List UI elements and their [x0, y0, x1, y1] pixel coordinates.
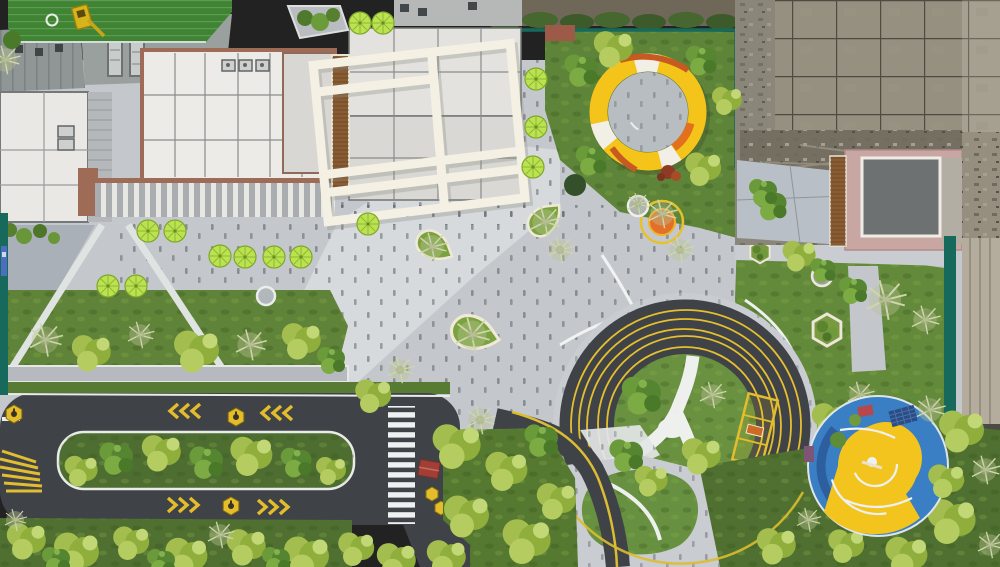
- hexagon-planter: [813, 314, 841, 346]
- construction-fence-left: [0, 213, 8, 395]
- purple-patch: [804, 446, 814, 462]
- top-roof-band: [394, 0, 522, 26]
- shed-roof: [545, 25, 575, 41]
- walkway-band: [0, 366, 348, 382]
- round-planter: [257, 287, 275, 305]
- right-edge-buildings: [960, 0, 1000, 482]
- hex-badge-3: [223, 497, 239, 515]
- putting-green: [8, 0, 232, 42]
- green-tuft: [830, 432, 846, 448]
- zebra-crossing: [388, 406, 415, 524]
- path-hub: [658, 418, 686, 438]
- red-kiosk: [418, 459, 440, 478]
- rooftop-ac-units: [222, 60, 269, 71]
- red-roof-edge: [95, 178, 335, 183]
- hex-badge: [6, 405, 22, 423]
- aerial-photo: S: [0, 0, 1000, 567]
- hex-badge-2: [228, 408, 244, 426]
- dark-shrub: [564, 174, 586, 196]
- side-blocks: [942, 158, 962, 244]
- green-tuft-2: [849, 414, 861, 426]
- fence-poster: [1, 246, 7, 276]
- inner-courtyard: [862, 158, 940, 236]
- top-planter: [288, 6, 348, 38]
- pink-roof-building: [830, 150, 962, 250]
- small-hexagon: [426, 487, 438, 501]
